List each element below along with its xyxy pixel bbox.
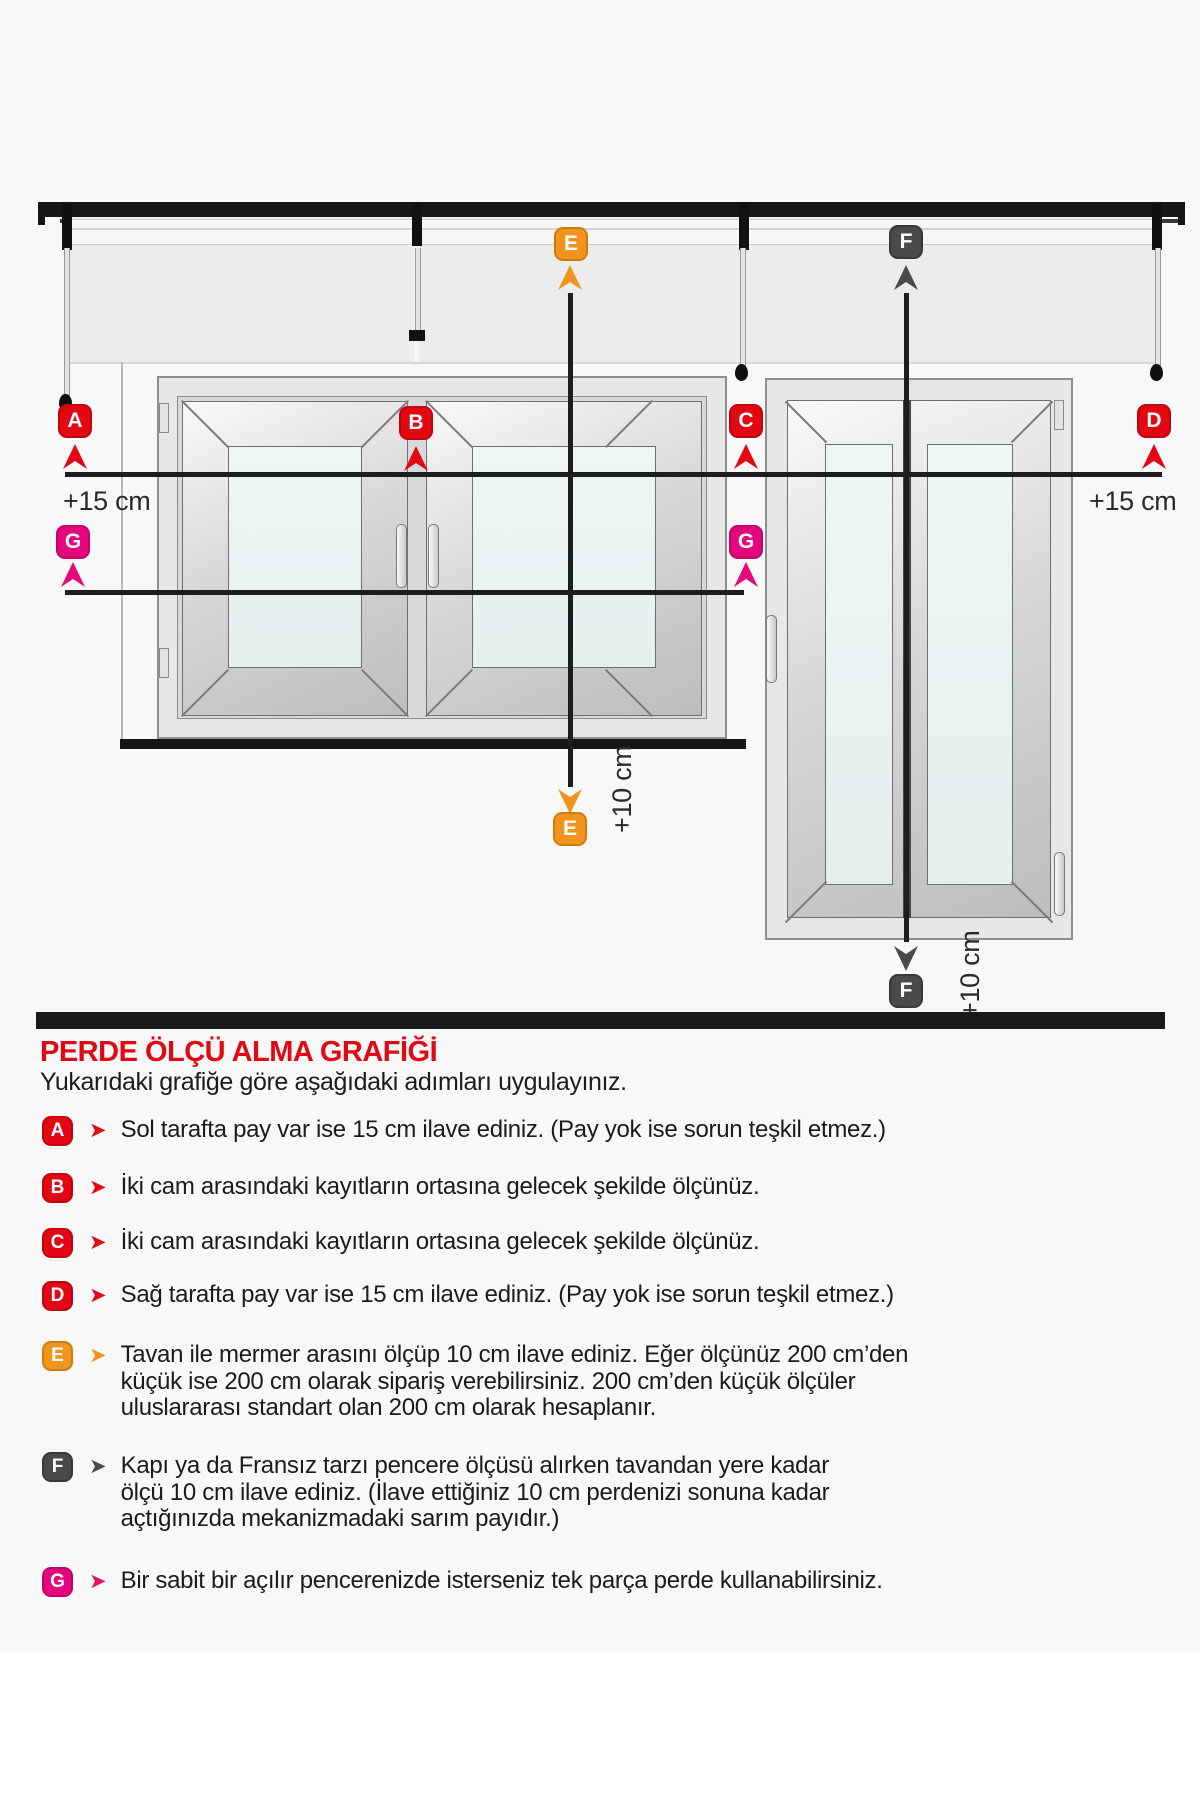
cord-left [64, 248, 70, 398]
window-handle-sash2 [428, 524, 439, 588]
curtain-roller [64, 219, 1160, 245]
instruction-row-a: A ➤ Sol tarafta pay var ise 15 cm ilave … [42, 1116, 1162, 1146]
row-text-b: İki cam arasındaki kayıtların ortasına g… [121, 1174, 760, 1201]
row-arrow-icon: ➤ [89, 1284, 107, 1308]
rail-end-right [1178, 217, 1185, 225]
row-arrow-icon: ➤ [89, 1231, 107, 1255]
marker-c: C [729, 404, 763, 438]
row-arrow-icon: ➤ [89, 1570, 107, 1594]
rail-bracket-left [62, 204, 72, 250]
row-text-c: İki cam arasındaki kayıtların ortasına g… [121, 1229, 760, 1256]
cord-pull-c [735, 364, 748, 381]
page-title: PERDE ÖLÇÜ ALMA GRAFİĞİ [40, 1036, 437, 1069]
window-handle-sash1 [396, 524, 407, 588]
ceiling-rail [38, 202, 1185, 217]
row-badge-d: D [42, 1281, 73, 1311]
row-badge-a: A [42, 1116, 73, 1146]
window-sill [120, 739, 746, 749]
rail-bracket-b [412, 204, 422, 246]
door-glass-2 [927, 444, 1013, 885]
page: A B C D G G E E F F +15 cm +15 cm +10 cm… [0, 0, 1200, 1800]
marker-e-bottom: E [553, 812, 587, 846]
instruction-row-d: D ➤ Sağ tarafta pay var ise 15 cm ilave … [42, 1281, 1162, 1311]
rail-bracket-c [739, 204, 749, 250]
rail-end-left [38, 217, 45, 225]
door-handle-right [1054, 852, 1065, 916]
row-text-a: Sol tarafta pay var ise 15 cm ilave edin… [121, 1117, 886, 1144]
measure-line-f [904, 293, 909, 942]
cord-pull-right [1150, 364, 1163, 381]
window-hinge-top [159, 403, 169, 433]
marker-g-right: G [729, 525, 763, 559]
row-arrow-icon: ➤ [89, 1344, 107, 1368]
wall-casing-left [121, 362, 123, 739]
marker-d: D [1137, 404, 1171, 438]
window-hinge-bottom [159, 648, 169, 678]
instruction-row-c: C ➤ İki cam arasındaki kayıtların ortası… [42, 1228, 1162, 1258]
instruction-row-g: G ➤ Bir sabit bir açılır pencerenizde is… [42, 1567, 1162, 1597]
label-plus10-f: +10 cm [955, 918, 985, 1018]
row-text-g: Bir sabit bir açılır pencerenizde isters… [121, 1568, 883, 1595]
row-badge-c: C [42, 1228, 73, 1258]
row-arrow-icon: ➤ [89, 1176, 107, 1200]
roller-line [64, 228, 1160, 230]
measure-line-width [65, 472, 1162, 477]
label-plus15-right: +15 cm [1089, 486, 1177, 517]
door-handle-left [766, 615, 777, 683]
cord-foot-b [409, 330, 425, 341]
section-divider [36, 1012, 1165, 1029]
row-badge-g: G [42, 1567, 73, 1597]
marker-g-left: G [56, 525, 90, 559]
instruction-row-b: B ➤ İki cam arasındaki kayıtların ortası… [42, 1173, 1162, 1203]
marker-f-bottom: F [889, 974, 923, 1008]
left-window-glass-2 [472, 446, 656, 668]
door-glass-1 [825, 444, 893, 885]
cord-b [415, 248, 421, 332]
row-badge-f: F [42, 1452, 73, 1482]
cord-right [1155, 248, 1161, 366]
row-text-e: Tavan ile mermer arasını ölçüp 10 cm ila… [121, 1342, 909, 1422]
marker-b: B [399, 406, 433, 440]
row-badge-e: E [42, 1341, 73, 1371]
cord-c [740, 248, 746, 366]
instruction-row-e: E ➤ Tavan ile mermer arasını ölçüp 10 cm… [42, 1341, 1162, 1422]
measure-line-e [568, 293, 573, 787]
label-plus15-left: +15 cm [63, 486, 151, 517]
marker-f-top: F [889, 225, 923, 259]
row-arrow-icon: ➤ [89, 1455, 107, 1479]
row-arrow-icon: ➤ [89, 1119, 107, 1143]
row-text-d: Sağ tarafta pay var ise 15 cm ilave edin… [121, 1282, 894, 1309]
row-badge-b: B [42, 1173, 73, 1203]
measure-line-g [65, 590, 744, 595]
label-plus10-e: +10 cm [607, 733, 637, 833]
row-text-f: Kapı ya da Fransız tarzı pencere ölçüsü … [121, 1453, 830, 1533]
left-window-glass-1 [228, 446, 362, 668]
instruction-row-f: F ➤ Kapı ya da Fransız tarzı pencere ölç… [42, 1452, 1162, 1533]
rail-bracket-right [1152, 204, 1162, 250]
marker-e-top: E [554, 227, 588, 261]
marker-a: A [58, 404, 92, 438]
door-hinge-right-top [1054, 400, 1064, 430]
page-subtitle: Yukarıdaki grafiğe göre aşağıdaki adımla… [40, 1068, 627, 1097]
